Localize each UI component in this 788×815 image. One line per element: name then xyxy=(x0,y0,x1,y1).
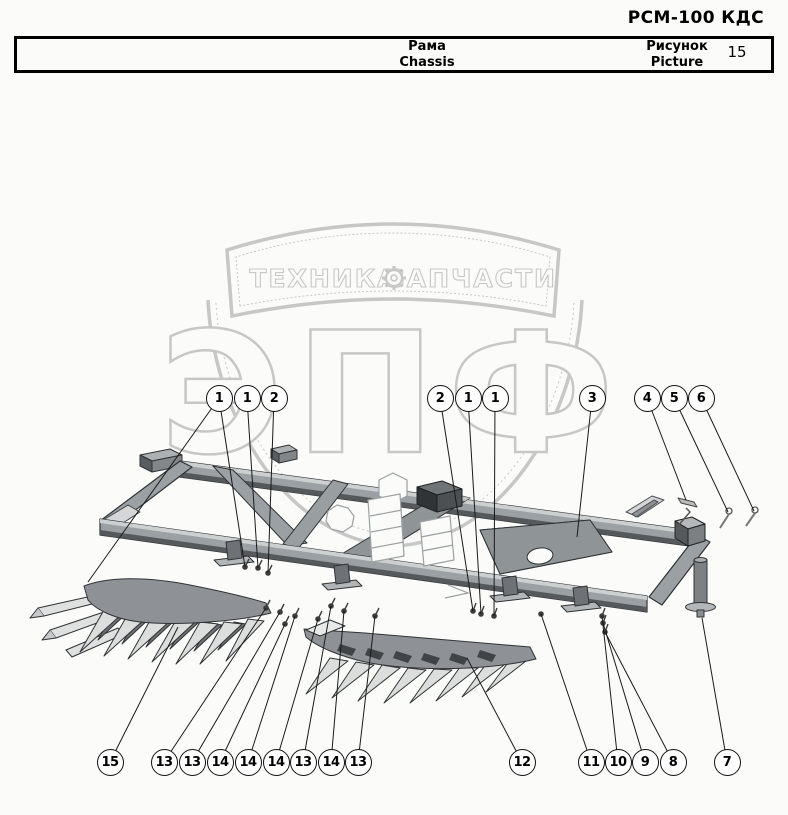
leader-line-6 xyxy=(701,398,754,511)
leader-line-15 xyxy=(110,627,178,762)
leader-line-14 xyxy=(220,624,285,762)
leader-line-5 xyxy=(674,398,728,512)
leader-line-9 xyxy=(603,623,645,762)
leader-line-14 xyxy=(276,619,318,762)
gear-icon xyxy=(382,266,406,290)
watermark-text-left: ТЕХНИКА xyxy=(249,264,398,293)
leader-line-14 xyxy=(248,616,295,762)
leader-line-10 xyxy=(602,616,618,762)
watermark-logo-text: ЭПФ xyxy=(160,296,627,492)
leader-line-12 xyxy=(467,658,522,762)
catalog-page: { "header": { "title": "РСМ-100 КДС" }, … xyxy=(0,0,788,815)
parts-diagram: ТЕХНИКА ЗАПЧАСТИ ЭПФ xyxy=(0,0,788,815)
leader-line-11 xyxy=(541,614,591,762)
gusset-plate xyxy=(480,520,612,574)
channel-bracket xyxy=(626,496,664,517)
watermark-text-right: ЗАПЧАСТИ xyxy=(387,264,557,293)
leader-line-7 xyxy=(702,618,727,762)
lifter-wings xyxy=(30,579,536,703)
leader-line-4 xyxy=(647,398,686,500)
